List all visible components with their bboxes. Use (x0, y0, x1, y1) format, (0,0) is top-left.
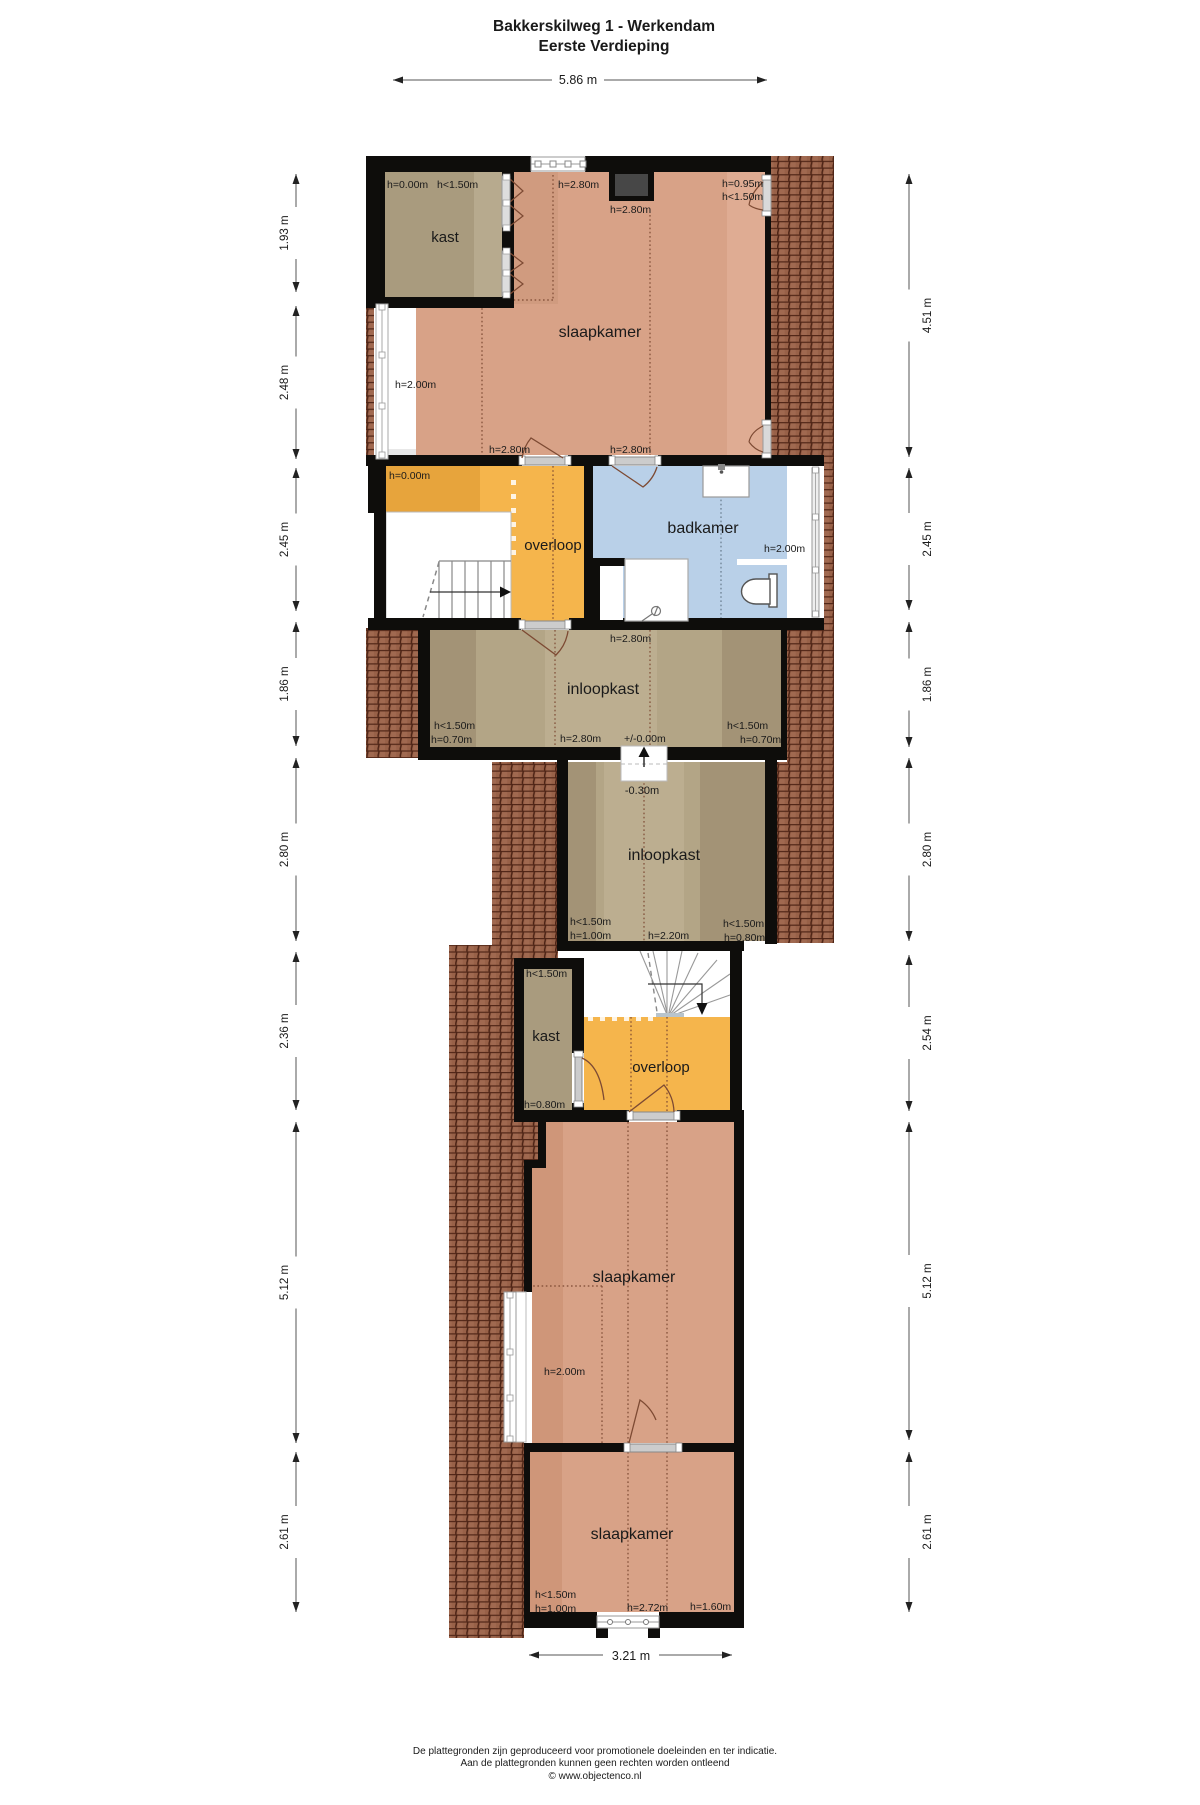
svg-text:5.86 m: 5.86 m (559, 73, 597, 87)
svg-text:5.12 m: 5.12 m (279, 1265, 291, 1300)
svg-text:h=0.80m: h=0.80m (524, 1099, 565, 1111)
svg-text:inloopkast: inloopkast (567, 681, 640, 698)
svg-text:h<1.50m: h<1.50m (434, 720, 475, 732)
svg-text:2.61 m: 2.61 m (279, 1514, 291, 1549)
svg-text:h=2.80m: h=2.80m (610, 204, 651, 216)
svg-text:h=2.00m: h=2.00m (764, 543, 805, 555)
svg-text:h=0.95m: h=0.95m (722, 178, 763, 190)
svg-text:4.51 m: 4.51 m (922, 298, 934, 333)
svg-text:Aan de plattegronden kunnen ge: Aan de plattegronden kunnen geen rechten… (460, 1758, 729, 1769)
svg-text:De plattegronden zijn geproduc: De plattegronden zijn geproduceerd voor … (413, 1746, 777, 1757)
svg-text:h=0.70m: h=0.70m (431, 734, 472, 746)
svg-text:+/-0.00m: +/-0.00m (624, 733, 666, 745)
svg-text:h=2.80m: h=2.80m (610, 633, 651, 645)
svg-text:h<1.50m: h<1.50m (722, 191, 763, 203)
svg-text:h<1.50m: h<1.50m (723, 918, 764, 930)
svg-text:h<1.50m: h<1.50m (570, 916, 611, 928)
svg-text:kast: kast (532, 1028, 560, 1045)
svg-text:2.61 m: 2.61 m (922, 1514, 934, 1549)
svg-text:h=2.20m: h=2.20m (648, 930, 689, 942)
svg-text:slaapkamer: slaapkamer (591, 1526, 674, 1543)
svg-text:2.36 m: 2.36 m (279, 1013, 291, 1048)
svg-text:Eerste Verdieping: Eerste Verdieping (539, 38, 670, 55)
svg-text:© www.objectenco.nl: © www.objectenco.nl (549, 1771, 642, 1782)
svg-text:1.86 m: 1.86 m (279, 666, 291, 701)
svg-text:2.48 m: 2.48 m (279, 365, 291, 400)
svg-text:5.12 m: 5.12 m (922, 1263, 934, 1298)
svg-text:badkamer: badkamer (667, 520, 739, 537)
svg-text:slaapkamer: slaapkamer (559, 324, 642, 341)
svg-text:h=1.00m: h=1.00m (570, 930, 611, 942)
svg-text:2.45 m: 2.45 m (922, 521, 934, 556)
svg-text:inloopkast: inloopkast (628, 847, 701, 864)
svg-text:overloop: overloop (632, 1059, 690, 1076)
svg-text:2.80 m: 2.80 m (279, 832, 291, 867)
svg-text:h<1.50m: h<1.50m (727, 720, 768, 732)
svg-text:h=2.80m: h=2.80m (560, 733, 601, 745)
svg-text:-0.30m: -0.30m (625, 785, 659, 797)
svg-text:2.80 m: 2.80 m (922, 832, 934, 867)
svg-text:h=2.80m: h=2.80m (558, 179, 599, 191)
svg-text:2.45 m: 2.45 m (279, 522, 291, 557)
svg-text:h=2.80m: h=2.80m (489, 444, 530, 456)
svg-text:h=0.70m: h=0.70m (740, 734, 781, 746)
svg-text:1.86 m: 1.86 m (922, 667, 934, 702)
svg-text:h=2.00m: h=2.00m (544, 1366, 585, 1378)
svg-text:1.93 m: 1.93 m (279, 215, 291, 250)
svg-text:h<1.50m: h<1.50m (526, 968, 567, 980)
svg-text:overloop: overloop (524, 537, 582, 554)
svg-text:h=0.00m: h=0.00m (389, 470, 430, 482)
svg-text:h=2.72m: h=2.72m (627, 1602, 668, 1614)
svg-text:Bakkerskilweg 1 - Werkendam: Bakkerskilweg 1 - Werkendam (493, 18, 715, 35)
svg-text:slaapkamer: slaapkamer (593, 1269, 676, 1286)
svg-text:h=2.00m: h=2.00m (395, 379, 436, 391)
svg-text:h=1.60m: h=1.60m (690, 1601, 731, 1613)
svg-text:h=2.80m: h=2.80m (610, 444, 651, 456)
svg-text:h<1.50m: h<1.50m (535, 1589, 576, 1601)
svg-text:2.54 m: 2.54 m (922, 1015, 934, 1050)
svg-text:3.21 m: 3.21 m (612, 1649, 650, 1663)
svg-text:h=0.00m: h=0.00m (387, 179, 428, 191)
svg-text:kast: kast (431, 229, 459, 246)
svg-text:h<1.50m: h<1.50m (437, 179, 478, 191)
svg-text:h=0.80m: h=0.80m (724, 932, 765, 944)
svg-text:h=1.00m: h=1.00m (535, 1603, 576, 1615)
